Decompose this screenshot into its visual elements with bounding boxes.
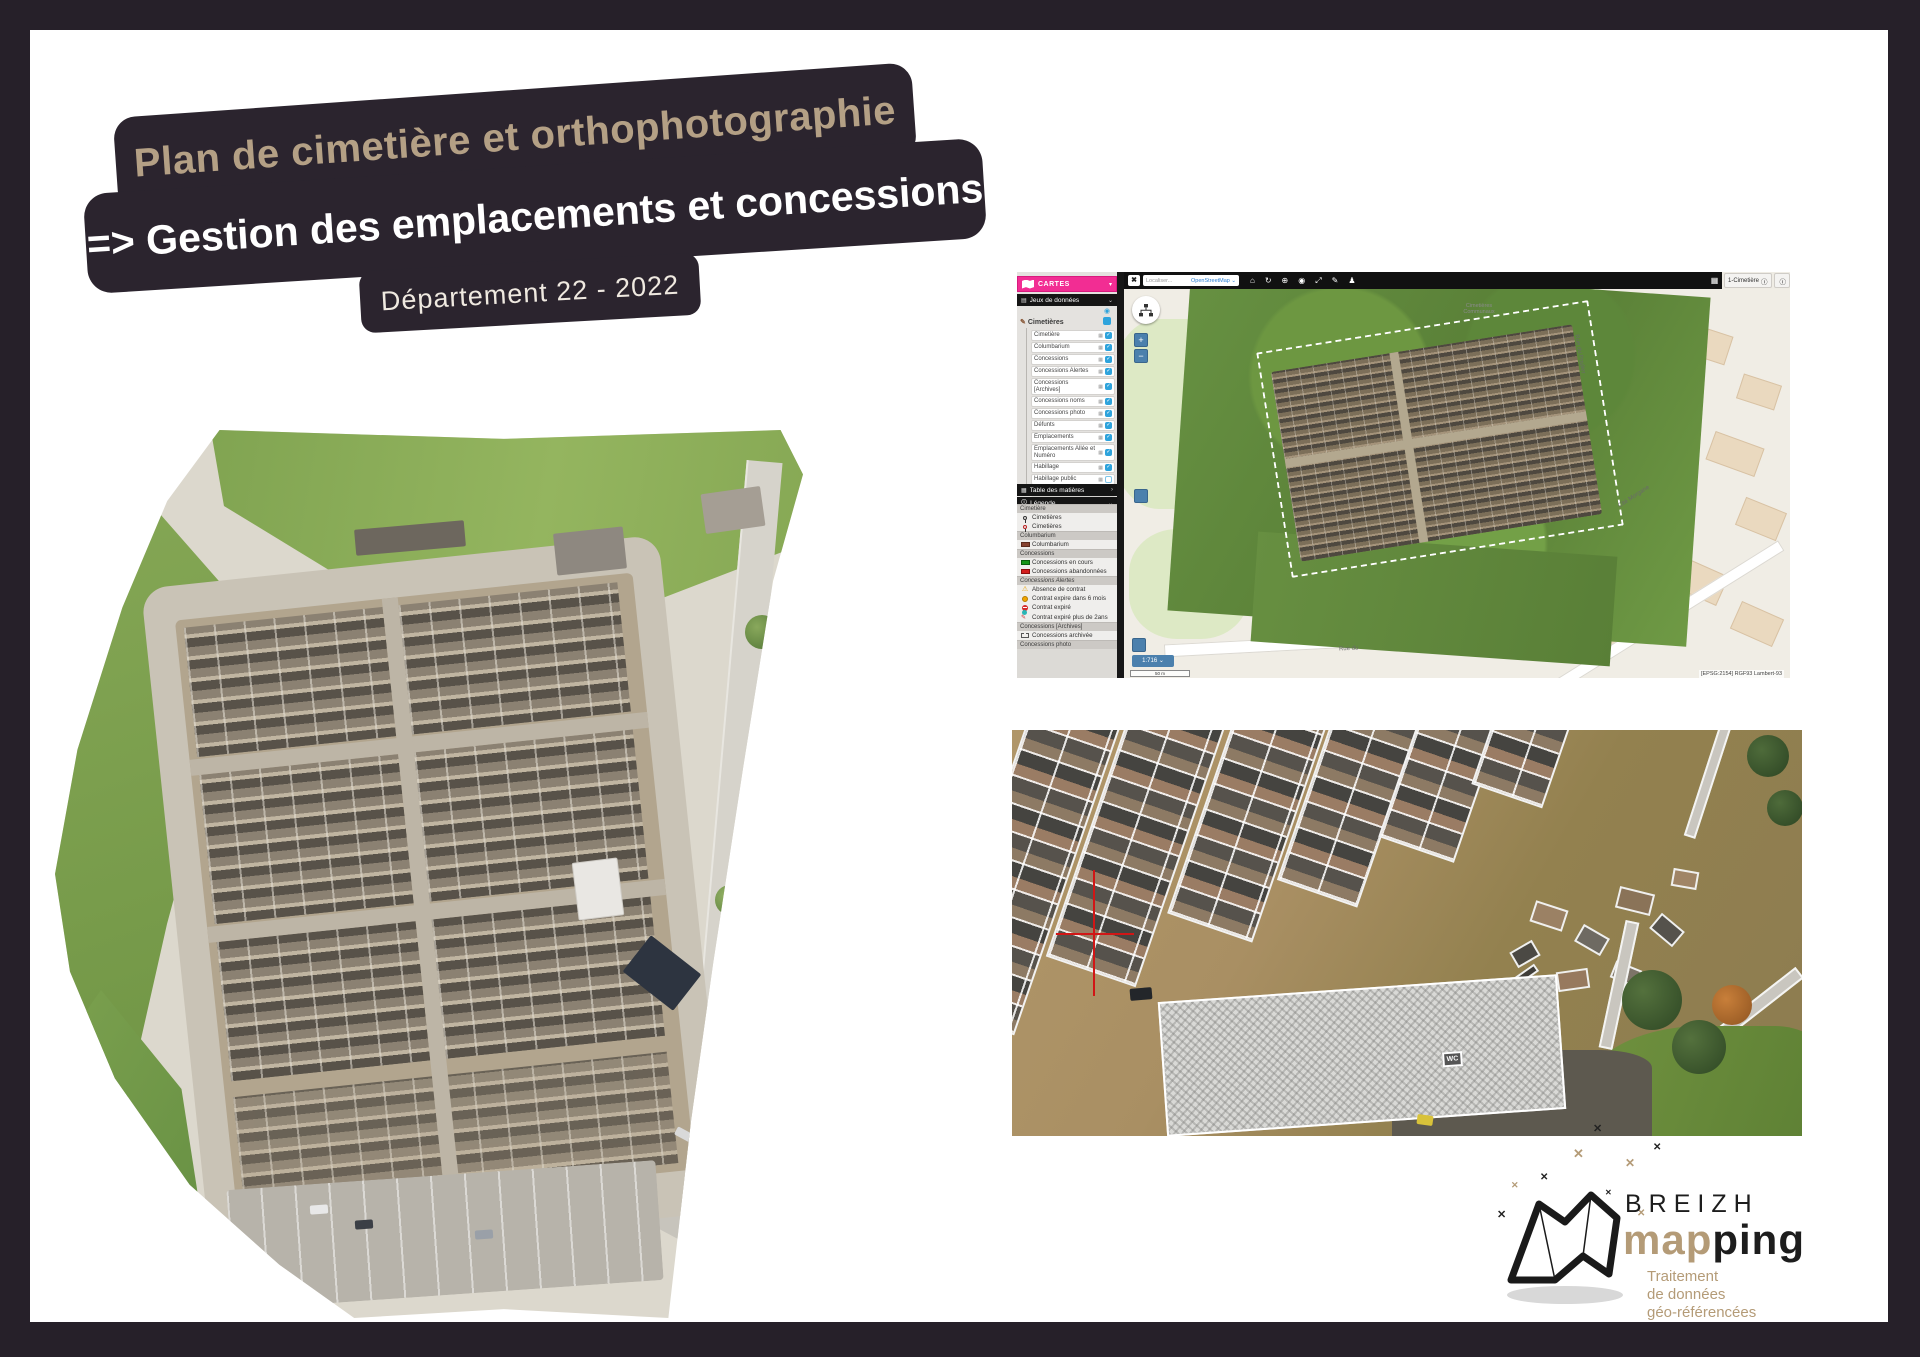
legend-item: Concessions archivée (1017, 631, 1117, 640)
x-mark: ✕ (1573, 1146, 1584, 1162)
layer-label: Concessions Alertes (1034, 368, 1096, 375)
layer-visibility-checkbox[interactable]: ✓ (1105, 434, 1112, 441)
grave-section (199, 754, 414, 924)
legend-section-header: Cimetière (1017, 504, 1117, 513)
legend-section-header: Concessions [Archives] (1017, 622, 1117, 631)
fullscreen-icon[interactable]: ⤢ (1315, 272, 1321, 289)
attribute-table-icon[interactable]: ▦ (1098, 333, 1103, 339)
search-placeholder: Localiser... (1146, 278, 1191, 284)
osm-building (1705, 431, 1764, 477)
legend-item-label: Contrat expiré (1032, 604, 1071, 611)
attribute-table-icon[interactable]: ▦ (1098, 345, 1103, 351)
layer-row[interactable]: Cimetière▦✓ (1031, 330, 1115, 341)
layer-label: Concessions noms (1034, 398, 1096, 405)
attribute-table-icon[interactable]: ▦ (1098, 465, 1103, 471)
tree (1672, 1020, 1726, 1074)
dataset-icon: ▤ (1021, 297, 1027, 304)
slide-background: Plan de cimetière et orthophotographie =… (30, 30, 1888, 1322)
cartes-title: CARTES (1038, 281, 1109, 288)
swatch-red-icon (1020, 569, 1030, 574)
pencil-icon: ✎ (1020, 318, 1026, 326)
pin-dark-icon (1020, 516, 1030, 520)
streetview-icon[interactable]: ♟ (1348, 272, 1355, 289)
legend-item: Cimetières (1017, 513, 1117, 522)
layer-row[interactable]: Concessions Alertes▦✓ (1031, 366, 1115, 377)
tree (761, 685, 787, 711)
red-annotation-line-vertical (1093, 870, 1095, 996)
tree (745, 615, 779, 649)
legend-item-label: Contrat expiré plus de 2ans (1032, 614, 1108, 621)
legend-item: Concessions abandonnées (1017, 567, 1117, 576)
layer-row[interactable]: Défunts▦✓ (1031, 420, 1115, 431)
layer-visibility-checkbox[interactable]: ✓ (1105, 344, 1112, 351)
logo-tagline: Traitement de données géo-référencées (1647, 1268, 1756, 1322)
car (355, 1219, 374, 1229)
zoom-extent-icon[interactable]: ⊕ (1282, 272, 1289, 289)
legend-section-header: Concessions (1017, 549, 1117, 558)
archive-box-icon (1020, 633, 1030, 638)
grave-plot (1615, 886, 1655, 916)
attribute-table-icon[interactable]: ▦ (1098, 477, 1103, 483)
attribute-table-icon[interactable]: ▦ (1098, 384, 1103, 390)
attribute-table-icon[interactable]: ▦ (1098, 450, 1103, 456)
osm-building (1730, 601, 1784, 647)
layer-row[interactable]: Emplacements▦✓ (1031, 432, 1115, 443)
x-mark: ✕ (1625, 1156, 1635, 1170)
osm-building (1736, 373, 1782, 410)
cemetery-orthophoto-large (55, 430, 803, 1318)
attribute-table-icon[interactable]: ▦ (1098, 357, 1103, 363)
legend-section-header: Concessions Alertes (1017, 576, 1117, 585)
layer-visibility-tools[interactable]: ◉ (1101, 308, 1113, 325)
legend-item: ⚠Absence de contrat (1017, 585, 1117, 594)
swatch-green-icon (1020, 560, 1030, 565)
layer-visibility-checkbox[interactable] (1105, 476, 1112, 483)
layer-visibility-checkbox[interactable]: ✓ (1105, 422, 1112, 429)
orange-circle-icon (1020, 596, 1030, 602)
cartes-header[interactable]: CARTES ▾ (1017, 276, 1117, 292)
warning-triangle-icon: ⚠ (1020, 586, 1030, 593)
legend-item: Contrat expire dans 6 mois (1017, 594, 1117, 603)
cemetery-path (1684, 730, 1732, 839)
legend-item-label: Columbarium (1032, 541, 1069, 548)
toc-icon: ▦ (1021, 487, 1027, 494)
home-icon[interactable]: ⌂ (1250, 272, 1255, 289)
layer-label: Cimetière (1034, 332, 1096, 339)
layer-row[interactable]: Columbarium▦✓ (1031, 342, 1115, 353)
layer-label: Habillage (1034, 464, 1096, 471)
grave-section (217, 921, 431, 1081)
legend-item: ✎Contrat expiré plus de 2ans (1017, 612, 1117, 622)
grave-plot (1574, 924, 1610, 956)
active-map-label: 1-Cimetière (1728, 278, 1759, 284)
legend-section-header: Columbarium (1017, 531, 1117, 540)
scale-selector[interactable]: 1:716 ⌄ (1132, 655, 1174, 667)
legend-item: Contrat expiré (1017, 603, 1117, 612)
brand-mapping: mapping (1623, 1216, 1805, 1264)
toc-label: Table des matières (1030, 487, 1111, 494)
active-map-chip[interactable]: 1-Cimetière ⓘ (1724, 273, 1772, 288)
map-icon (1022, 280, 1034, 289)
datasets-bar[interactable]: ▤ Jeux de données ⌄ (1017, 294, 1117, 306)
pin-red-icon (1020, 525, 1030, 529)
legend-panel: CimetièreCimetièresCimetièresColumbarium… (1017, 504, 1117, 678)
datasets-label: Jeux de données (1030, 297, 1108, 304)
scalebar: 50 m (1130, 670, 1190, 677)
layer-group-cimetieres[interactable]: ✎ Cimetières (1020, 318, 1064, 326)
layer-visibility-checkbox[interactable]: ✓ (1105, 332, 1112, 339)
toolbar-black-bar: ✖ Localiser... OpenStreetMap ⌄ ⌂ ↻ ⊕ ◉ ⤢… (1124, 272, 1707, 289)
sidebar-divider[interactable] (1117, 272, 1124, 678)
slide-frame: Plan de cimetière et orthophotographie =… (0, 0, 1920, 1357)
legend-item: Columbarium (1017, 540, 1117, 549)
grave-plot (1671, 868, 1700, 890)
legend-item-label: Cimetières (1032, 514, 1062, 521)
layer-list: Cimetière▦✓Columbarium▦✓Concessions▦✓Con… (1031, 330, 1115, 498)
layer-label: Défunts (1034, 422, 1096, 429)
grave-section (184, 607, 396, 757)
layer-visibility-checkbox[interactable]: ✓ (1105, 464, 1112, 471)
eye-icon[interactable]: ◉ (1101, 308, 1113, 315)
folded-map-icon (1503, 1182, 1638, 1307)
legend-item: Cimetières (1017, 522, 1117, 531)
tree-autumn (1712, 985, 1752, 1025)
attribute-table-icon[interactable]: ▦ (1098, 423, 1103, 429)
info-icon: ⓘ (1761, 276, 1768, 286)
layer-label: Emplacements (1034, 434, 1096, 441)
layer-label: Columbarium (1034, 344, 1096, 351)
grid-icon[interactable]: ▦ (1707, 272, 1722, 289)
crs-label: [EPSG:2154] RGF93 Lambert-93 (1699, 670, 1784, 678)
refresh-icon[interactable]: ↻ (1265, 272, 1272, 289)
layer-row[interactable]: Concessions [Archives]▦✓ (1031, 378, 1115, 395)
geolocate-button[interactable] (1134, 489, 1148, 503)
swatch-maroon-icon (1020, 542, 1030, 547)
layer-visibility-checkbox[interactable]: ✓ (1105, 398, 1112, 405)
layer-label: Habillage public (1034, 476, 1096, 483)
close-icon[interactable]: ✖ (1128, 275, 1140, 286)
title-line3: Département 22 - 2022 (380, 269, 680, 317)
map-place-label: CimetièresCommunaux (1444, 303, 1514, 315)
layer-visibility-checkbox[interactable]: ✓ (1105, 410, 1112, 417)
search-input[interactable]: Localiser... OpenStreetMap ⌄ (1143, 275, 1239, 286)
select-all-checkbox[interactable] (1103, 317, 1111, 325)
zoom-in-button[interactable]: + (1134, 333, 1148, 347)
street-label: Rue du (1339, 645, 1359, 652)
layer-label: Concessions photo (1034, 410, 1096, 417)
wc-label: WC (1442, 1051, 1463, 1067)
map-toolbar: ✖ Localiser... OpenStreetMap ⌄ ⌂ ↻ ⊕ ◉ ⤢… (1124, 272, 1790, 289)
grave-plot (1529, 900, 1568, 931)
x-mark: ✕ (1653, 1142, 1661, 1153)
layer-visibility-checkbox[interactable]: ✓ (1105, 356, 1112, 363)
grave-section (399, 582, 631, 734)
layer-row[interactable]: Habillage▦✓ (1031, 462, 1115, 473)
layer-label: Emplacements Allée et Numéro (1034, 446, 1096, 459)
tree (715, 885, 745, 915)
grave-plot (1649, 913, 1685, 948)
chevron-down-icon[interactable]: ▾ (1109, 281, 1112, 288)
gis-map-zone: + − 1:716 ⌄ 50 m [EPSG:2154] RGF93 Lambe… (1124, 272, 1790, 678)
grave-plot (1556, 968, 1590, 992)
brand-map-part: map (1623, 1216, 1712, 1263)
gis-app-screenshot: CARTES ▾ ▤ Jeux de données ⌄ ◉ ✎ Cimetiè… (1017, 272, 1790, 678)
attribute-table-icon[interactable]: ▦ (1098, 399, 1103, 405)
basemap-select[interactable]: OpenStreetMap ⌄ (1191, 278, 1236, 284)
legend-item-label: Concessions archivée (1032, 632, 1093, 639)
tree (1767, 790, 1802, 826)
map-canvas[interactable]: + − 1:716 ⌄ 50 m [EPSG:2154] RGF93 Lambe… (1124, 289, 1790, 678)
brand-breizh: BREIZH (1625, 1190, 1759, 1219)
attribute-table-icon[interactable]: ▦ (1098, 369, 1103, 375)
tree (1747, 735, 1789, 777)
zoom-out-button[interactable]: − (1134, 349, 1148, 363)
layer-tree-line (1026, 328, 1027, 486)
chevron-right-icon[interactable]: › (1111, 487, 1113, 493)
legend-item: Concessions en cours (1017, 558, 1117, 567)
sitemap-button[interactable] (1132, 296, 1160, 324)
layer-row[interactable]: Concessions photo▦✓ (1031, 408, 1115, 419)
red-annotation-line-horizontal (1056, 933, 1134, 935)
building-white (572, 857, 625, 920)
info-chip[interactable]: ⓘ (1774, 273, 1791, 288)
x-mark: ✕ (1593, 1122, 1602, 1135)
info-icon: ⓘ (1780, 276, 1787, 286)
map-tool-button[interactable] (1132, 638, 1146, 652)
layer-visibility-checkbox[interactable]: ✓ (1105, 449, 1112, 456)
cemetery-closeup-photo: WC (1012, 730, 1802, 1136)
breizh-mapping-logo: ✕✕✕✕✕✕✕✕✕✕✕ BREIZH mapping Traitement de… (1485, 1120, 1865, 1322)
building-top-right (701, 486, 766, 534)
grave-column (1471, 730, 1587, 808)
legend-item-label: Cimetières (1032, 523, 1062, 530)
marker-icon[interactable]: ◉ (1298, 272, 1305, 289)
tree (1622, 970, 1682, 1030)
legend-item-label: Concessions en cours (1032, 559, 1093, 566)
layer-label: Concessions (1034, 356, 1096, 363)
layer-group-label: Cimetières (1028, 319, 1064, 326)
legend-item-label: Contrat expire dans 6 mois (1032, 595, 1106, 602)
layer-visibility-checkbox[interactable]: ✓ (1105, 368, 1112, 375)
draw-icon[interactable]: ✎ (1332, 272, 1339, 289)
sitemap-icon (1139, 304, 1153, 317)
car (475, 1229, 494, 1239)
layer-label: Concessions [Archives] (1034, 380, 1096, 393)
attribute-table-icon[interactable]: ▦ (1098, 411, 1103, 417)
legend-item-label: Absence de contrat (1032, 586, 1085, 593)
covered-building-roof: WC (1158, 974, 1566, 1136)
attribute-table-icon[interactable]: ▦ (1098, 435, 1103, 441)
chevron-down-icon[interactable]: ⌄ (1108, 297, 1113, 304)
car (1130, 987, 1153, 1001)
legend-section-header: Concessions photo (1017, 640, 1117, 649)
layer-row[interactable]: Concessions▦✓ (1031, 354, 1115, 365)
toc-bar[interactable]: ▦ Table des matières › (1017, 484, 1117, 496)
brand-ping-part: ping (1712, 1216, 1805, 1263)
building-chapel (553, 526, 627, 575)
car (310, 1204, 329, 1214)
gis-sidebar: CARTES ▾ ▤ Jeux de données ⌄ ◉ ✎ Cimetiè… (1017, 272, 1117, 678)
legend-item-label: Concessions abandonnées (1032, 568, 1107, 575)
osm-building (1735, 497, 1787, 541)
grave-plot (1509, 940, 1541, 969)
layer-row[interactable]: Emplacements Allée et Numéro▦✓ (1031, 444, 1115, 461)
layer-visibility-checkbox[interactable]: ✓ (1105, 383, 1112, 390)
layer-row[interactable]: Concessions noms▦✓ (1031, 396, 1115, 407)
car-yellow (1416, 1114, 1433, 1126)
teal-pen-icon: ✎ (1020, 613, 1030, 621)
